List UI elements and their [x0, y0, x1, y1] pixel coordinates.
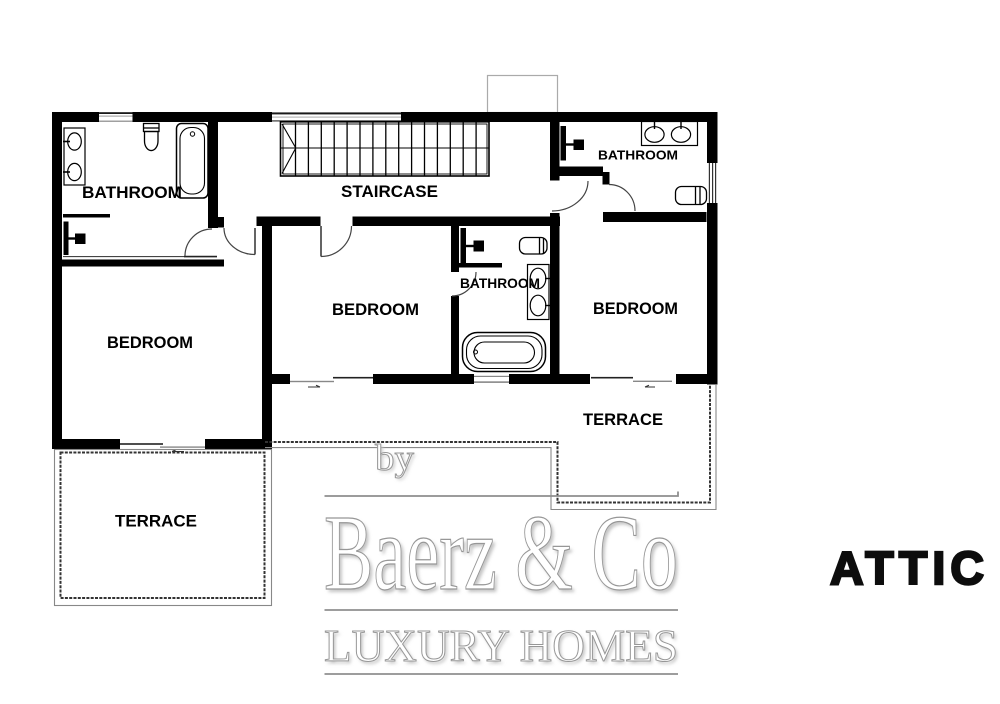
svg-text:BEDROOM: BEDROOM	[593, 300, 678, 318]
svg-text:TERRACE: TERRACE	[115, 513, 197, 531]
svg-text:STAIRCASE: STAIRCASE	[341, 182, 438, 201]
svg-text:BATHROOM: BATHROOM	[82, 184, 182, 202]
svg-text:by: by	[375, 438, 415, 479]
svg-text:BATHROOM: BATHROOM	[598, 149, 678, 163]
svg-text:BATHROOM: BATHROOM	[460, 276, 540, 291]
svg-text:BEDROOM: BEDROOM	[107, 334, 193, 352]
svg-text:TERRACE: TERRACE	[583, 411, 663, 429]
svg-text:Baerz & Co: Baerz & Co	[324, 494, 678, 613]
svg-text:LUXURY HOMES: LUXURY HOMES	[324, 620, 678, 671]
svg-text:BEDROOM: BEDROOM	[332, 301, 419, 319]
svg-text:ATTIC: ATTIC	[830, 542, 984, 594]
